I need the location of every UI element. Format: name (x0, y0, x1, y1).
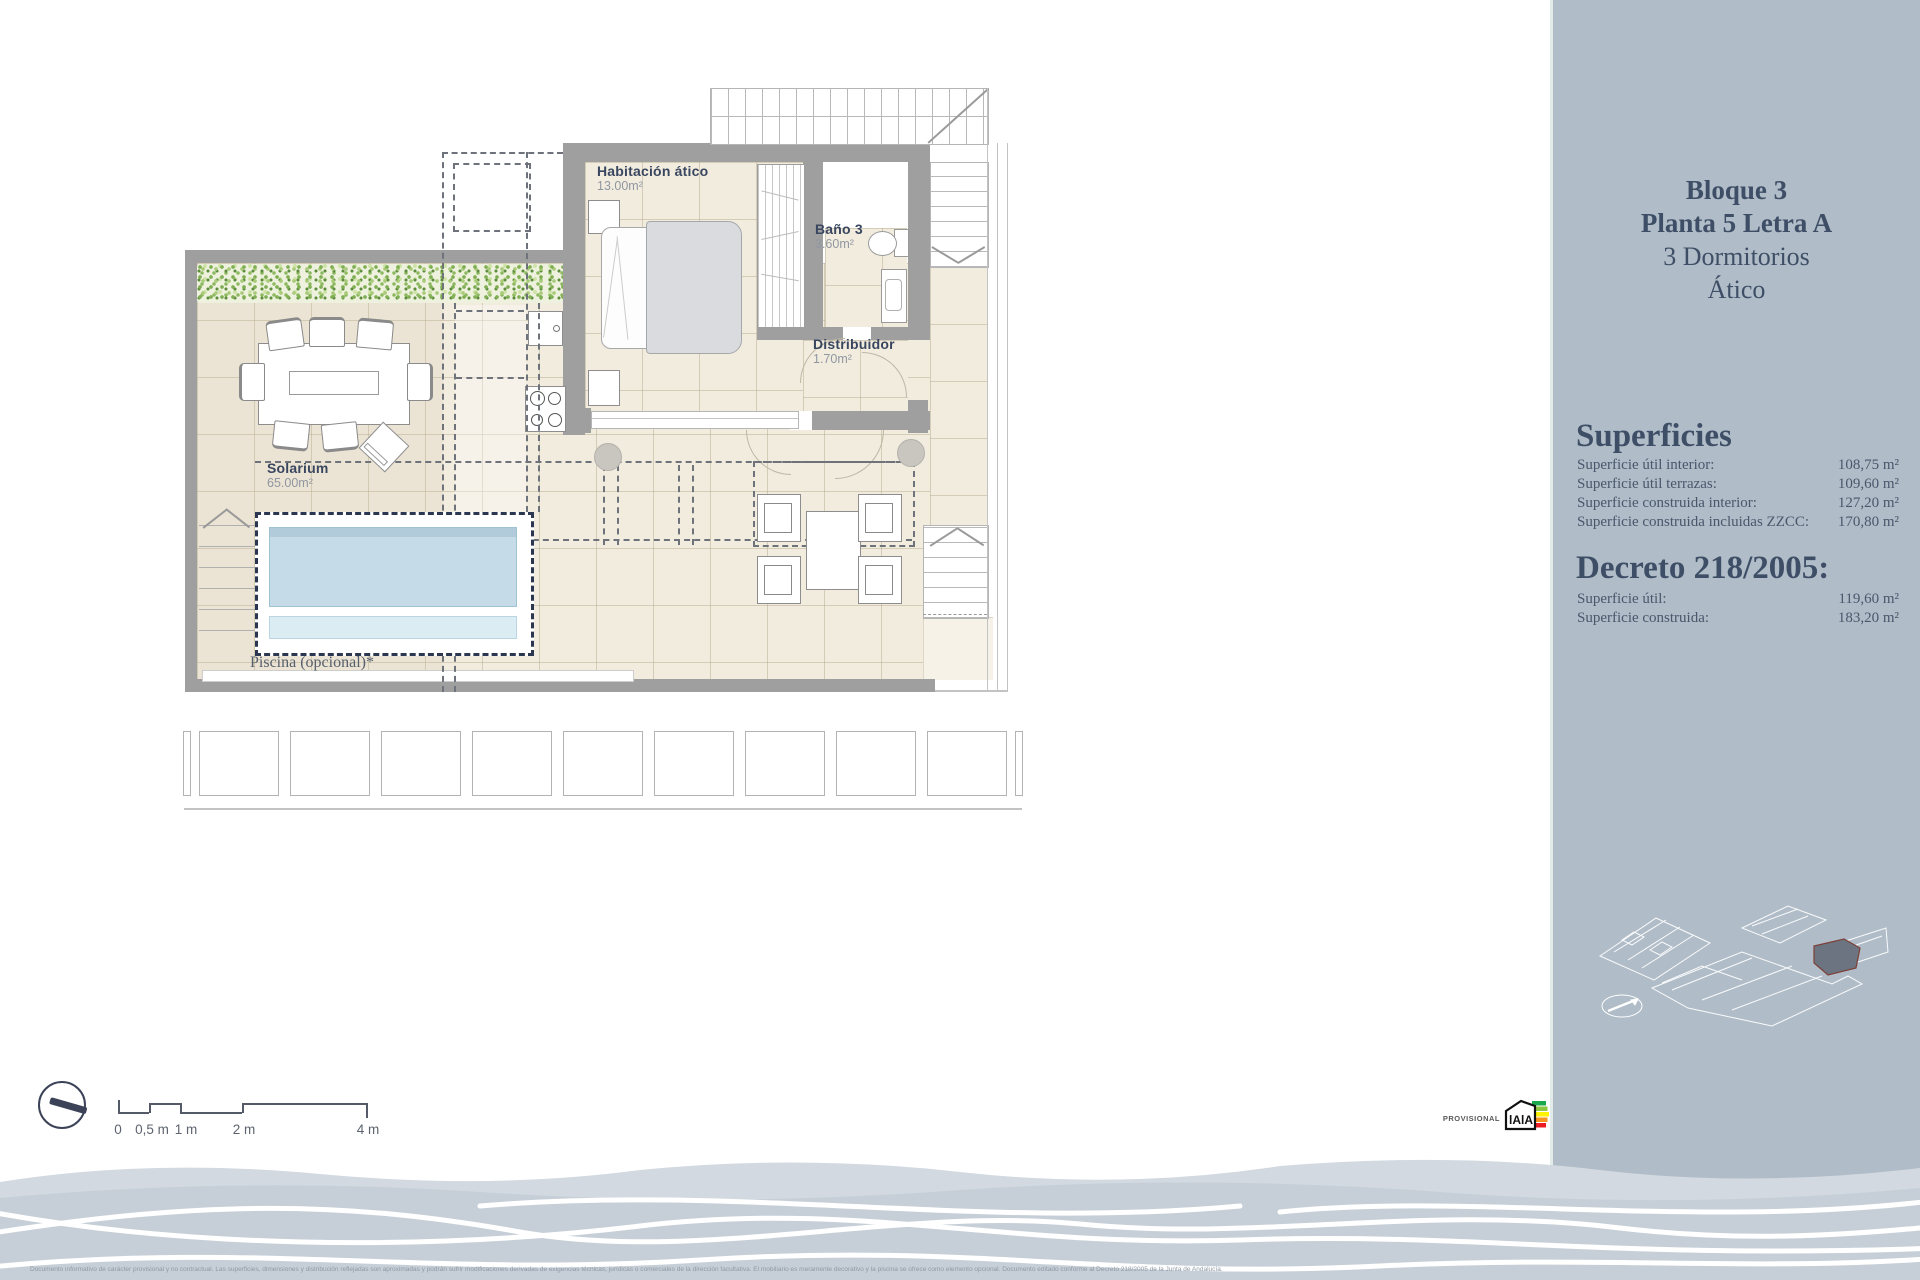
storage-box (836, 731, 916, 796)
wall-segment (563, 143, 585, 435)
room-label-solarium: Solarium 65.00m² (267, 460, 329, 490)
room-area: 13.00m² (597, 179, 708, 193)
scale-label: 1 m (175, 1122, 198, 1137)
dash-line (617, 465, 619, 545)
sidebar-panel: Bloque 3 Planta 5 Letra A 3 Dormitorios … (1553, 0, 1920, 1280)
row-label: Superficie construida incluidas ZZCC: (1577, 513, 1809, 532)
pergola-projection-box (453, 163, 531, 232)
stairs-left (199, 521, 255, 631)
provisional-label: PROVISIONAL (1430, 1114, 1500, 1123)
boundary-line (935, 690, 1008, 692)
scale-segment (242, 1103, 366, 1105)
room-area: 3.60m² (815, 237, 863, 251)
row-value: 170,80 m² (1838, 513, 1899, 532)
floor-light-patch (455, 305, 526, 515)
wall-segment (185, 250, 197, 692)
planter-pot (897, 439, 925, 467)
boundary-line (997, 143, 998, 692)
row-label: Superficie construida interior: (1577, 494, 1757, 513)
chair (309, 317, 345, 347)
title-line: Planta 5 Letra A (1553, 207, 1920, 240)
bed-pillows (601, 227, 649, 349)
superficies-row: Superficie útil terrazas: 109,60 m² (1577, 475, 1899, 494)
room-name: Solarium (267, 460, 329, 476)
room-name: Baño 3 (815, 221, 863, 237)
decreto-heading: Decreto 218/2005: (1576, 550, 1829, 587)
planter-pot (594, 443, 622, 471)
kitchen-sink-unit (528, 311, 563, 346)
boundary-line (987, 88, 988, 692)
north-compass-icon (1602, 995, 1642, 1017)
pool-label: Piscina (opcional)* (250, 654, 374, 672)
bathroom-sink (881, 269, 907, 323)
dash-line (603, 465, 605, 545)
room-name: Distribuidor (813, 336, 895, 352)
kitchen-stove (525, 386, 566, 432)
boundary-line (184, 808, 1022, 810)
row-value: 109,60 m² (1838, 475, 1899, 494)
chair (272, 420, 311, 452)
dash-line (456, 377, 524, 379)
dash-line (442, 152, 563, 154)
room-label-bano: Baño 3 3.60m² (815, 221, 863, 251)
room-name: Habitación ático (597, 163, 708, 179)
storage-box-partial (1015, 731, 1023, 796)
decreto-row: Superficie útil: 119,60 m² (1577, 590, 1899, 609)
storage-box (563, 731, 643, 796)
nightstand (588, 370, 620, 406)
armchair (858, 556, 902, 604)
svg-text:lAlA: lAlA (1509, 1113, 1533, 1127)
row-label: Superficie construida: (1577, 609, 1709, 628)
dining-table (258, 343, 410, 425)
room-label-distribuidor: Distribuidor 1.70m² (813, 336, 895, 366)
storage-box-partial (183, 731, 191, 796)
scale-label: 0,5 m (135, 1122, 169, 1137)
energy-certificate-icon: lAlA (1504, 1098, 1550, 1132)
title-line: Bloque 3 (1553, 174, 1920, 207)
boundary-line (1007, 143, 1008, 692)
dash-line (456, 310, 524, 312)
chair (265, 317, 305, 352)
scale-step (242, 1103, 244, 1113)
decreto-table: Superficie útil: 119,60 m² Superficie co… (1577, 590, 1899, 628)
bed-duvet (646, 221, 742, 354)
waves-decoration (0, 1140, 1920, 1280)
site-minimap (1592, 888, 1892, 1033)
right-lower-floor (923, 617, 993, 680)
storage-box (381, 731, 461, 796)
room-label-habitacion: Habitación ático 13.00m² (597, 163, 708, 193)
stairs-right-lower (923, 525, 989, 619)
superficies-table: Superficie útil interior: 108,75 m² Supe… (1577, 456, 1899, 532)
armchair (757, 494, 801, 542)
scale-segment (180, 1112, 242, 1114)
pool-lower-strip (269, 616, 517, 639)
wall-segment (563, 143, 930, 162)
dash-line (692, 465, 694, 545)
armchair (757, 556, 801, 604)
brochure-page: Habitación ático 13.00m² Baño 3 3.60m² D… (0, 0, 1920, 1280)
row-value: 119,60 m² (1838, 590, 1899, 609)
title-line: Ático (1553, 273, 1920, 306)
scale-label: 4 m (357, 1122, 380, 1137)
storage-box (745, 731, 825, 796)
storage-box (654, 731, 734, 796)
wall-segment (185, 250, 565, 263)
right-terrace-floor (930, 267, 987, 525)
row-label: Superficie útil: (1577, 590, 1667, 609)
storage-box (927, 731, 1007, 796)
wall-segment (563, 408, 591, 433)
title-line: 3 Dormitorios (1553, 240, 1920, 273)
superficies-row: Superficie útil interior: 108,75 m² (1577, 456, 1899, 475)
storage-box (290, 731, 370, 796)
dash-line (678, 465, 680, 545)
pool-water (269, 527, 517, 607)
row-value: 183,20 m² (1838, 609, 1899, 628)
legal-disclaimer: Documento informativo de carácter provis… (30, 1266, 1530, 1273)
scale-segment (149, 1103, 180, 1105)
room-area: 65.00m² (267, 476, 329, 490)
chair (356, 317, 394, 350)
scale-segment (118, 1112, 149, 1114)
armchair (858, 494, 902, 542)
chair (321, 421, 360, 453)
stairs-top (710, 88, 989, 145)
storage-box (199, 731, 279, 796)
hedge-planter (197, 264, 563, 303)
coffee-table (806, 511, 861, 590)
scale-label: 2 m (233, 1122, 256, 1137)
superficies-row: Superficie construida incluidas ZZCC: 17… (1577, 513, 1899, 532)
bathroom-upper-white (825, 162, 907, 228)
wardrobe (757, 164, 805, 328)
superficies-row: Superficie construida interior: 127,20 m… (1577, 494, 1899, 513)
dash-line (538, 303, 540, 512)
superficies-heading: Superficies (1576, 418, 1732, 455)
room-area: 1.70m² (813, 352, 895, 366)
storage-box (472, 731, 552, 796)
row-label: Superficie útil interior: (1577, 456, 1714, 475)
row-value: 108,75 m² (1838, 456, 1899, 475)
unit-title: Bloque 3 Planta 5 Letra A 3 Dormitorios … (1553, 174, 1920, 306)
row-value: 127,20 m² (1838, 494, 1899, 513)
scale-step (149, 1103, 151, 1113)
chair (407, 363, 433, 401)
wall-segment (908, 162, 930, 330)
glazing-band (591, 411, 799, 429)
decreto-row: Superficie construida: 183,20 m² (1577, 609, 1899, 628)
dash-line (923, 614, 987, 615)
scale-label: 0 (114, 1122, 122, 1137)
scale-tick (366, 1103, 368, 1118)
chair (239, 363, 265, 401)
toilet-bowl (868, 231, 897, 256)
row-label: Superficie útil terrazas: (1577, 475, 1717, 494)
highlighted-unit (1814, 939, 1860, 975)
wall-segment (797, 411, 930, 430)
